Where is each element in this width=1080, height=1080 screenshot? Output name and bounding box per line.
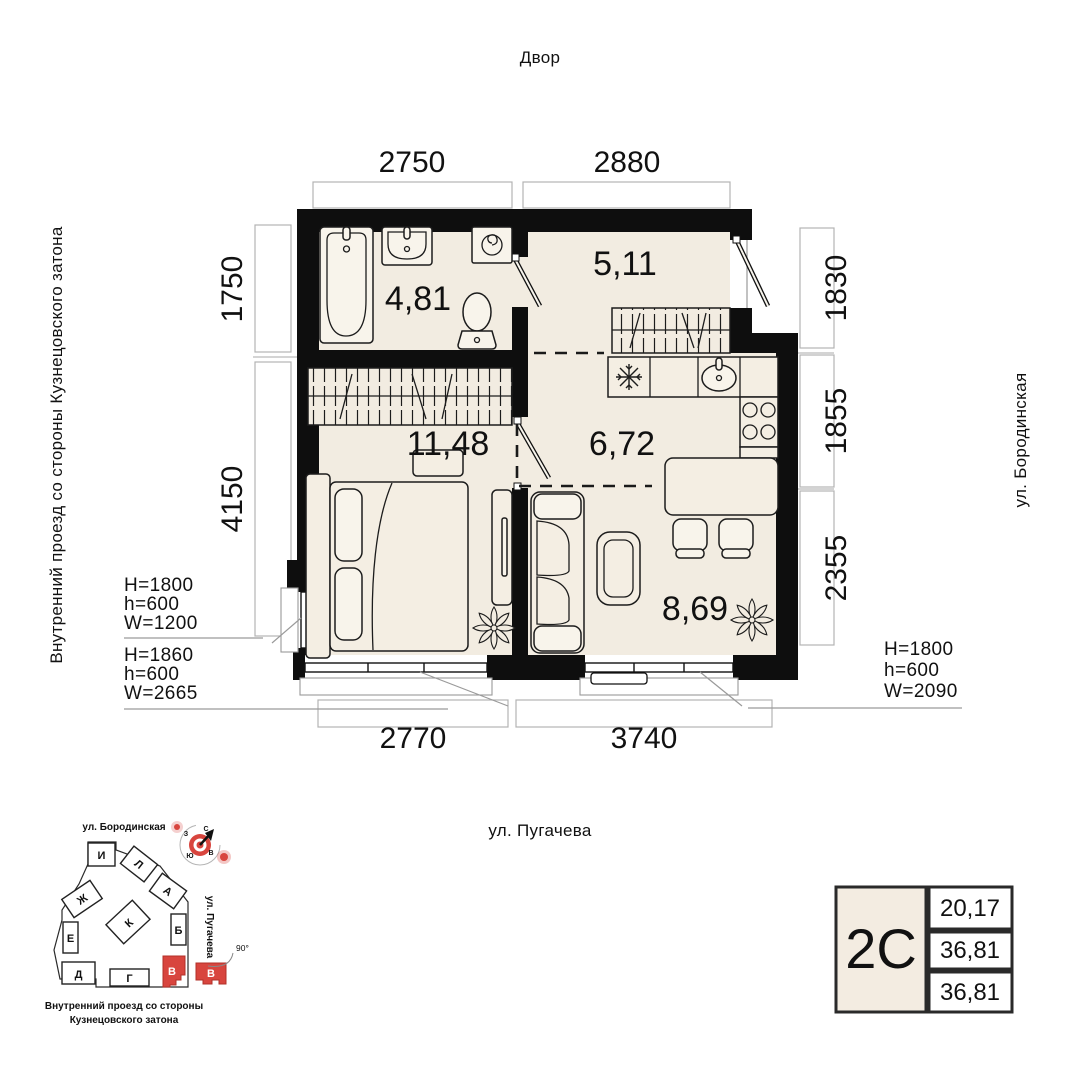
bedroom-wardrobe (308, 368, 512, 425)
dim-bottom-2: 3740 (611, 722, 678, 755)
svg-text:W=2090: W=2090 (884, 681, 958, 702)
hall-wardrobe (612, 308, 730, 353)
site-plan: И Л А Ж К Б Е Д Г В В 90° ул. Бородинска… (45, 821, 249, 1026)
apartment-type: 2С (845, 917, 917, 980)
apartment-info-card: 2С 20,17 36,81 36,81 (836, 887, 1012, 1012)
card-value-1: 20,17 (940, 895, 1000, 922)
svg-text:h=600: h=600 (884, 660, 939, 681)
area-kitchen: 6,72 (589, 425, 655, 463)
area-bathroom: 4,81 (385, 280, 451, 318)
card-value-2: 36,81 (940, 937, 1000, 964)
dim-right-3: 2355 (820, 535, 853, 602)
svg-text:H=1860: H=1860 (124, 645, 194, 666)
window-bedroom (300, 655, 508, 706)
label-street-left: Внутренний проезд со стороны Кузнецовско… (47, 226, 66, 664)
building-label: Г (126, 973, 133, 985)
dim-left-1: 1750 (216, 256, 249, 323)
building-label: И (98, 850, 106, 862)
bed (306, 474, 468, 658)
washing-machine (472, 227, 512, 263)
svg-text:h=600: h=600 (124, 594, 179, 615)
svg-text:H=1800: H=1800 (884, 639, 954, 660)
building-label: В (207, 968, 215, 980)
tv-stand (492, 490, 512, 605)
site-caption-2: Кузнецовского затона (70, 1015, 179, 1026)
svg-text:H=1800: H=1800 (124, 575, 194, 596)
area-hall: 5,11 (593, 245, 657, 283)
window-living (580, 655, 742, 706)
building-label: Е (67, 933, 74, 945)
building-label: Б (175, 925, 183, 937)
window-spec-left-1: H=1800 h=600 W=1200 (124, 575, 263, 638)
dim-top-2: 2880 (594, 146, 661, 179)
plant-bedroom (473, 607, 515, 649)
svg-text:h=600: h=600 (124, 664, 179, 685)
plant-living (731, 599, 773, 641)
site-street-side: ул. Пугачева (204, 896, 215, 959)
chair (719, 519, 753, 558)
compass-e: В (208, 850, 213, 857)
svg-text:W=2665: W=2665 (124, 683, 198, 704)
site-caption-1: Внутренний проезд со стороны (45, 1001, 203, 1012)
label-yard: Двор (520, 48, 560, 67)
dim-right-2: 1855 (820, 388, 853, 455)
chair (673, 519, 707, 558)
area-bedroom: 11,48 (407, 425, 490, 463)
building-label: Д (75, 969, 83, 981)
stove (740, 397, 778, 458)
area-living: 8,69 (662, 590, 728, 628)
rotation-angle: 90° (236, 943, 249, 953)
label-street-bottom: ул. Пугачева (488, 821, 592, 840)
compass-s: Ю (186, 853, 193, 860)
dim-top-1: 2750 (379, 146, 446, 179)
dim-bottom-1: 2770 (380, 722, 447, 755)
building-label: В (168, 966, 176, 978)
compass-w: З (184, 831, 189, 838)
floor-plan-page: 4,81 5,11 11,48 6,72 8,69 2750 2880 2770… (0, 0, 1080, 1080)
bathtub (320, 227, 373, 343)
dim-right-1: 1830 (820, 255, 853, 322)
compass-n: С (203, 826, 208, 833)
floor-plan-canvas: 4,81 5,11 11,48 6,72 8,69 2750 2880 2770… (0, 0, 1080, 1080)
dim-left-2: 4150 (216, 466, 249, 533)
svg-text:W=1200: W=1200 (124, 613, 198, 634)
coffee-table (597, 532, 640, 605)
bathroom-sink (382, 227, 432, 265)
card-value-3: 36,81 (940, 979, 1000, 1006)
compass: З С Ю В (171, 821, 231, 865)
label-street-right: ул. Бородинская (1011, 373, 1030, 508)
bar-table (665, 458, 778, 515)
entrance-door (730, 236, 768, 308)
sofa (531, 492, 584, 653)
site-street-top: ул. Бородинская (82, 822, 165, 833)
